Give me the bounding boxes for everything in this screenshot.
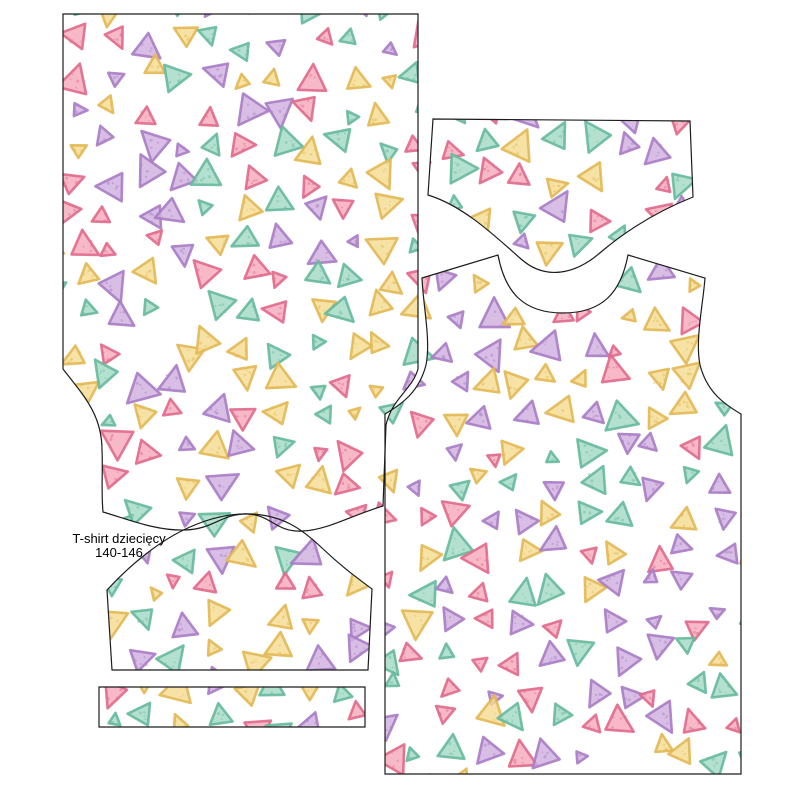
size-label: T-shirt dziecięcy 140-146	[48, 532, 190, 560]
size-label-size: 140-146	[48, 546, 190, 560]
fabric-triangle-print	[0, 0, 800, 800]
pattern-sheet-svg	[0, 0, 800, 800]
size-label-product: T-shirt dziecięcy	[72, 531, 165, 546]
sewing-pattern-panel: T-shirt dziecięcy 140-146	[0, 0, 800, 800]
